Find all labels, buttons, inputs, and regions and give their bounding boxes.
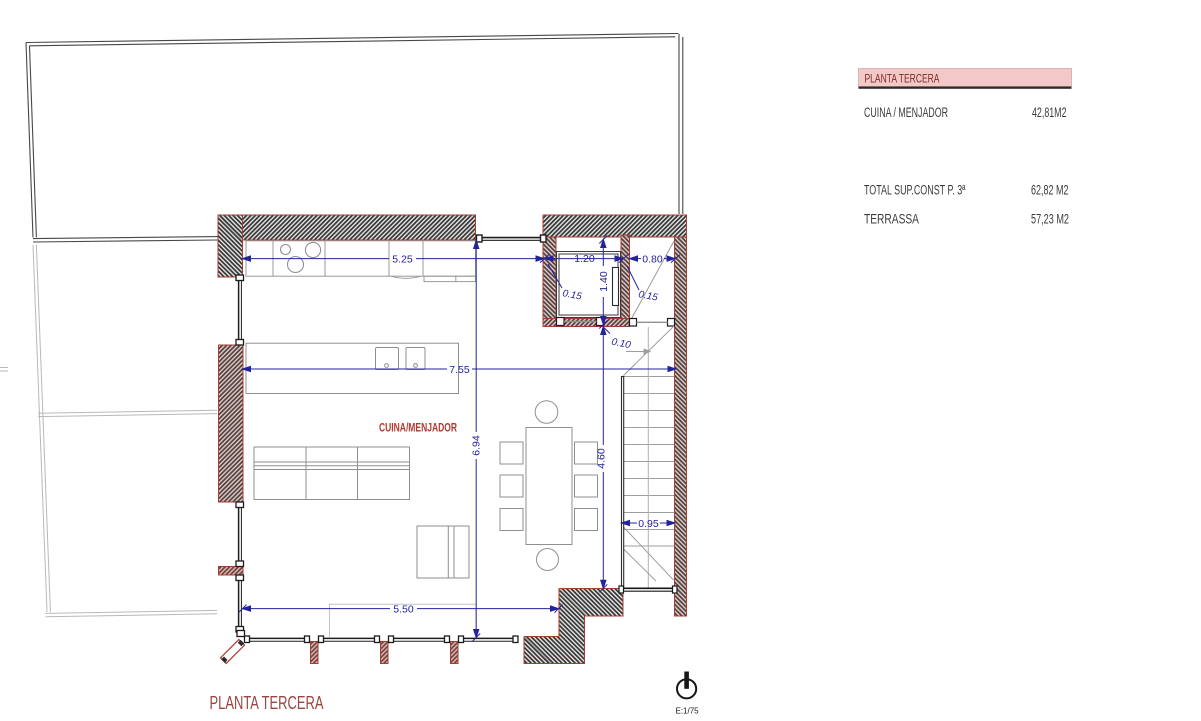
svg-text:CUINA / MENJADOR: CUINA / MENJADOR: [864, 105, 948, 120]
svg-text:57,23 M2: 57,23 M2: [1031, 212, 1069, 227]
svg-text:42,81M2: 42,81M2: [1032, 105, 1067, 120]
svg-text:1.20: 1.20: [574, 253, 595, 265]
svg-text:5.25: 5.25: [392, 254, 413, 266]
svg-text:62,82 M2: 62,82 M2: [1031, 183, 1069, 198]
svg-text:0.95: 0.95: [638, 518, 659, 530]
svg-text:4.60: 4.60: [596, 448, 608, 469]
svg-text:0.80: 0.80: [642, 254, 663, 266]
svg-text:PLANTA TERCERA: PLANTA TERCERA: [865, 72, 940, 86]
svg-text:1.40: 1.40: [598, 271, 610, 292]
svg-text:CUINA/MENJADOR: CUINA/MENJADOR: [379, 421, 457, 435]
svg-text:TERRASSA: TERRASSA: [864, 212, 919, 227]
svg-text:7.55: 7.55: [449, 364, 470, 376]
svg-text:TOTAL SUP.CONST P. 3ª: TOTAL SUP.CONST P. 3ª: [864, 183, 966, 198]
svg-text:0.10: 0.10: [610, 337, 632, 352]
svg-text:0.15: 0.15: [561, 288, 583, 303]
svg-text:PLANTA TERCERA: PLANTA TERCERA: [210, 692, 324, 713]
svg-text:E:1/75: E:1/75: [676, 707, 700, 716]
svg-text:6.94: 6.94: [471, 435, 483, 456]
svg-text:5.50: 5.50: [393, 604, 414, 616]
